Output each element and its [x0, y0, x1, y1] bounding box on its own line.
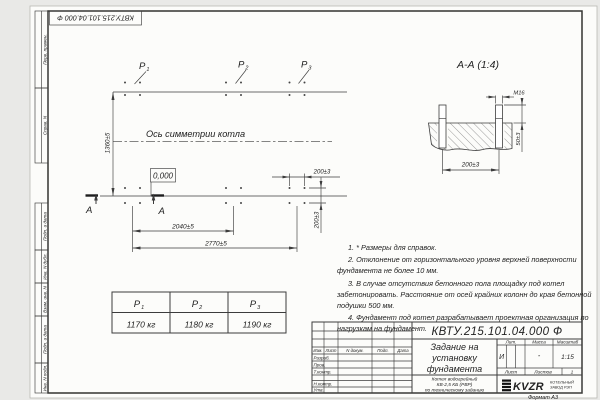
- kvzr-logo-text: KVZR: [513, 381, 544, 393]
- sheet-label: Лист: [504, 370, 517, 376]
- margin-label-inv-dubl: Инв. N дубл.: [43, 253, 48, 280]
- doc-title-line2: установку: [431, 353, 477, 363]
- svg-text:2770±5: 2770±5: [204, 241, 227, 248]
- mass-header: Масса: [532, 340, 546, 345]
- margin-label-sprav-n: Справ. N: [43, 115, 48, 135]
- doc-title-line3: фундамента: [427, 364, 482, 374]
- margin-label-podp-data-2: Подп. и дата: [43, 325, 48, 354]
- sheets-label: Листов: [533, 370, 552, 376]
- col-data: Дата: [396, 348, 409, 353]
- drawing-canvas: КВТУ.215.101.04.000 Ф Перв. примен. Спра…: [0, 0, 600, 400]
- col-ndoc: N докум.: [346, 348, 363, 353]
- doc-subtitle-line1: Котел водогрейный: [432, 376, 478, 383]
- col-list: Лист: [324, 348, 336, 353]
- doc-title-line1: Задание на: [431, 342, 479, 352]
- anchor-stud-right: [496, 105, 503, 148]
- section-letter-a1: А: [85, 205, 92, 216]
- note-1: 1. * Размеры для справок.: [337, 242, 594, 253]
- doc-subtitle-line2: КВ-2,5 КБ (РВР): [437, 382, 473, 388]
- section-letter-a2: А: [158, 206, 165, 217]
- role-nkontr: Н.контр.: [314, 382, 333, 387]
- format-label: Формат А3: [528, 395, 559, 400]
- inverted-doc-number: КВТУ.215.101.04.000 Ф: [57, 14, 134, 23]
- margin-label-vzam-inv: Взам. инв. N: [43, 285, 48, 312]
- doc-subtitle-line3: по техническому заданию: [425, 388, 485, 394]
- role-utv: Утв.: [314, 388, 324, 393]
- svg-text:М16: М16: [513, 91, 525, 97]
- lit-header: Лит.: [505, 340, 517, 345]
- load-table-value-p2: 1180 кг: [185, 320, 214, 330]
- svg-text:200±3: 200±3: [313, 170, 331, 176]
- svg-text:200±3: 200±3: [315, 211, 321, 229]
- col-izm: Изм.: [313, 348, 322, 353]
- note-3: 3. В случае отсутствия бетонного пола пл…: [337, 278, 594, 312]
- axis-label: Ось симметрии котла: [146, 129, 245, 139]
- svg-text:2040±5: 2040±5: [171, 224, 194, 231]
- scale-header: Масштаб: [557, 340, 579, 345]
- svg-text:50±3: 50±3: [516, 132, 522, 146]
- load-table-value-p3: 1190 кг: [243, 320, 272, 330]
- section-title: А-А (1:4): [456, 59, 499, 71]
- drawing-sheet-page: КВТУ.215.101.04.000 Ф Перв. примен. Спра…: [0, 0, 600, 400]
- sheets-value: 1: [571, 370, 574, 376]
- role-prov: Пров.: [314, 363, 326, 368]
- svg-text:200±3: 200±3: [461, 162, 480, 169]
- margin-label-inv-podl: Инв. N подл.: [43, 365, 48, 392]
- col-podp: Подп.: [377, 348, 388, 353]
- note-4: 4. Фундамент под котел разрабатывает про…: [337, 312, 594, 334]
- logo-caption-line2: ЗАВОД РЭП: [550, 386, 572, 390]
- note-2: 2. Отклонение от горизонтального уровня …: [337, 254, 594, 276]
- svg-text:1360±5: 1360±5: [105, 132, 112, 153]
- elevation-value: 0,000: [153, 172, 174, 181]
- margin-label-perv-primen: Перв. примен.: [43, 34, 48, 65]
- role-razrab: Разраб.: [314, 356, 330, 361]
- load-table-value-p1: 1170 кг: [127, 320, 156, 330]
- role-tkontr: Т.контр.: [314, 370, 332, 375]
- anchor-stud-left: [439, 105, 446, 148]
- logo-caption-line1: КОТЕЛЬНЫЙ: [550, 381, 574, 385]
- technical-notes: 1. * Размеры для справок. 2. Отклонение …: [337, 242, 594, 336]
- scale-value: 1:15: [561, 354, 574, 361]
- margin-label-podp-data-1: Подп. и дата: [43, 212, 48, 241]
